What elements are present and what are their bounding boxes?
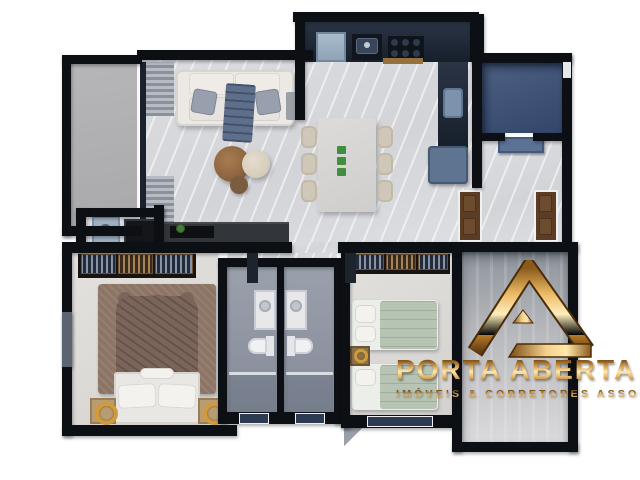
wall-segment: [218, 262, 227, 424]
wall-segment: [154, 205, 164, 245]
kitchen-bench-blue: [428, 146, 468, 184]
bed-pillow: [117, 383, 156, 409]
hanging-clothes: [418, 254, 448, 270]
dining-table: [318, 118, 376, 212]
dining-chair: [301, 126, 317, 148]
bed-pillow: [157, 383, 196, 409]
floorplan-render: { "watermark": { "brand": "PORTA ABERTA"…: [0, 0, 640, 480]
bed-pillow: [355, 369, 376, 386]
wall-segment: [277, 266, 284, 416]
wall-segment: [568, 242, 578, 452]
bed-roll-pillow: [140, 368, 174, 379]
hanging-clothes: [155, 254, 193, 274]
dining-chair: [377, 126, 393, 148]
service-window: [563, 62, 571, 78]
refrigerator: [316, 32, 346, 62]
bathroom-window: [296, 414, 324, 423]
sage-duvet: [380, 301, 437, 349]
open-door-leaf: [247, 253, 258, 283]
dining-chair: [301, 180, 317, 202]
plant-icon: [176, 224, 185, 233]
wall-segment: [62, 242, 292, 253]
toilet-bowl: [294, 338, 313, 354]
coffee-table-small: [242, 150, 270, 178]
wardrobe: [352, 252, 450, 274]
sofa-pillow-gray: [190, 88, 218, 116]
dining-chair: [377, 153, 393, 175]
door-panel: [539, 218, 552, 235]
wall-segment: [452, 242, 578, 252]
bedroom-window: [368, 417, 432, 426]
sink-faucet-icon: [364, 42, 370, 48]
shower-floor: [229, 375, 276, 412]
gold-lamp-icon: [95, 402, 118, 425]
wall-segment: [338, 242, 462, 253]
shower-floor: [286, 375, 333, 412]
side-room-floor: [462, 252, 568, 442]
sofa-pillow-gray: [254, 88, 281, 115]
toilet: [266, 336, 274, 356]
wall-segment: [76, 208, 164, 217]
curtain: [146, 62, 174, 116]
wall-segment: [472, 62, 482, 188]
wardrobe: [78, 252, 196, 278]
sage-duvet: [380, 365, 437, 409]
door-panel: [463, 218, 476, 235]
balcony-floor: [71, 64, 137, 226]
counter-wood-edge: [383, 58, 423, 64]
vanity-sink-icon: [259, 300, 271, 312]
wall-segment: [475, 133, 505, 141]
wall-segment: [472, 53, 572, 63]
wall-segment: [452, 242, 462, 452]
placemat-green: [337, 146, 346, 154]
bed-pillow: [355, 305, 376, 323]
master-window: [62, 312, 72, 367]
counter-sink-blue: [443, 88, 463, 118]
wall-segment: [293, 12, 479, 22]
wall-segment: [62, 55, 71, 236]
wood-door: [534, 190, 558, 242]
burner-icon: [391, 39, 398, 46]
toilet-bowl: [248, 338, 267, 354]
door-panel: [539, 195, 552, 212]
wall-segment: [562, 53, 572, 245]
bed-pillow: [355, 326, 376, 342]
wall-segment: [62, 425, 237, 436]
dining-chair: [377, 180, 393, 202]
service-area-floor: [482, 63, 562, 133]
dining-chair: [301, 153, 317, 175]
gold-lamp-icon: [354, 349, 368, 363]
throw-blanket: [222, 83, 256, 143]
wall-segment: [62, 55, 142, 64]
door-panel: [463, 195, 476, 212]
wall-segment: [137, 50, 313, 60]
bathroom-window: [240, 414, 268, 423]
corner-shadow: [344, 428, 362, 446]
wall-segment: [452, 442, 578, 452]
open-door-leaf: [345, 253, 356, 283]
vanity-sink-icon: [290, 300, 302, 312]
hanging-clothes: [118, 254, 153, 274]
wood-door: [458, 190, 482, 242]
wall-segment: [533, 133, 565, 141]
hanging-clothes: [354, 254, 384, 270]
wall-segment: [295, 22, 305, 120]
coffee-stool: [230, 176, 248, 194]
wall-segment: [62, 226, 142, 236]
hanging-clothes: [386, 254, 416, 270]
hanging-clothes: [81, 254, 116, 274]
wall-segment: [218, 412, 343, 424]
